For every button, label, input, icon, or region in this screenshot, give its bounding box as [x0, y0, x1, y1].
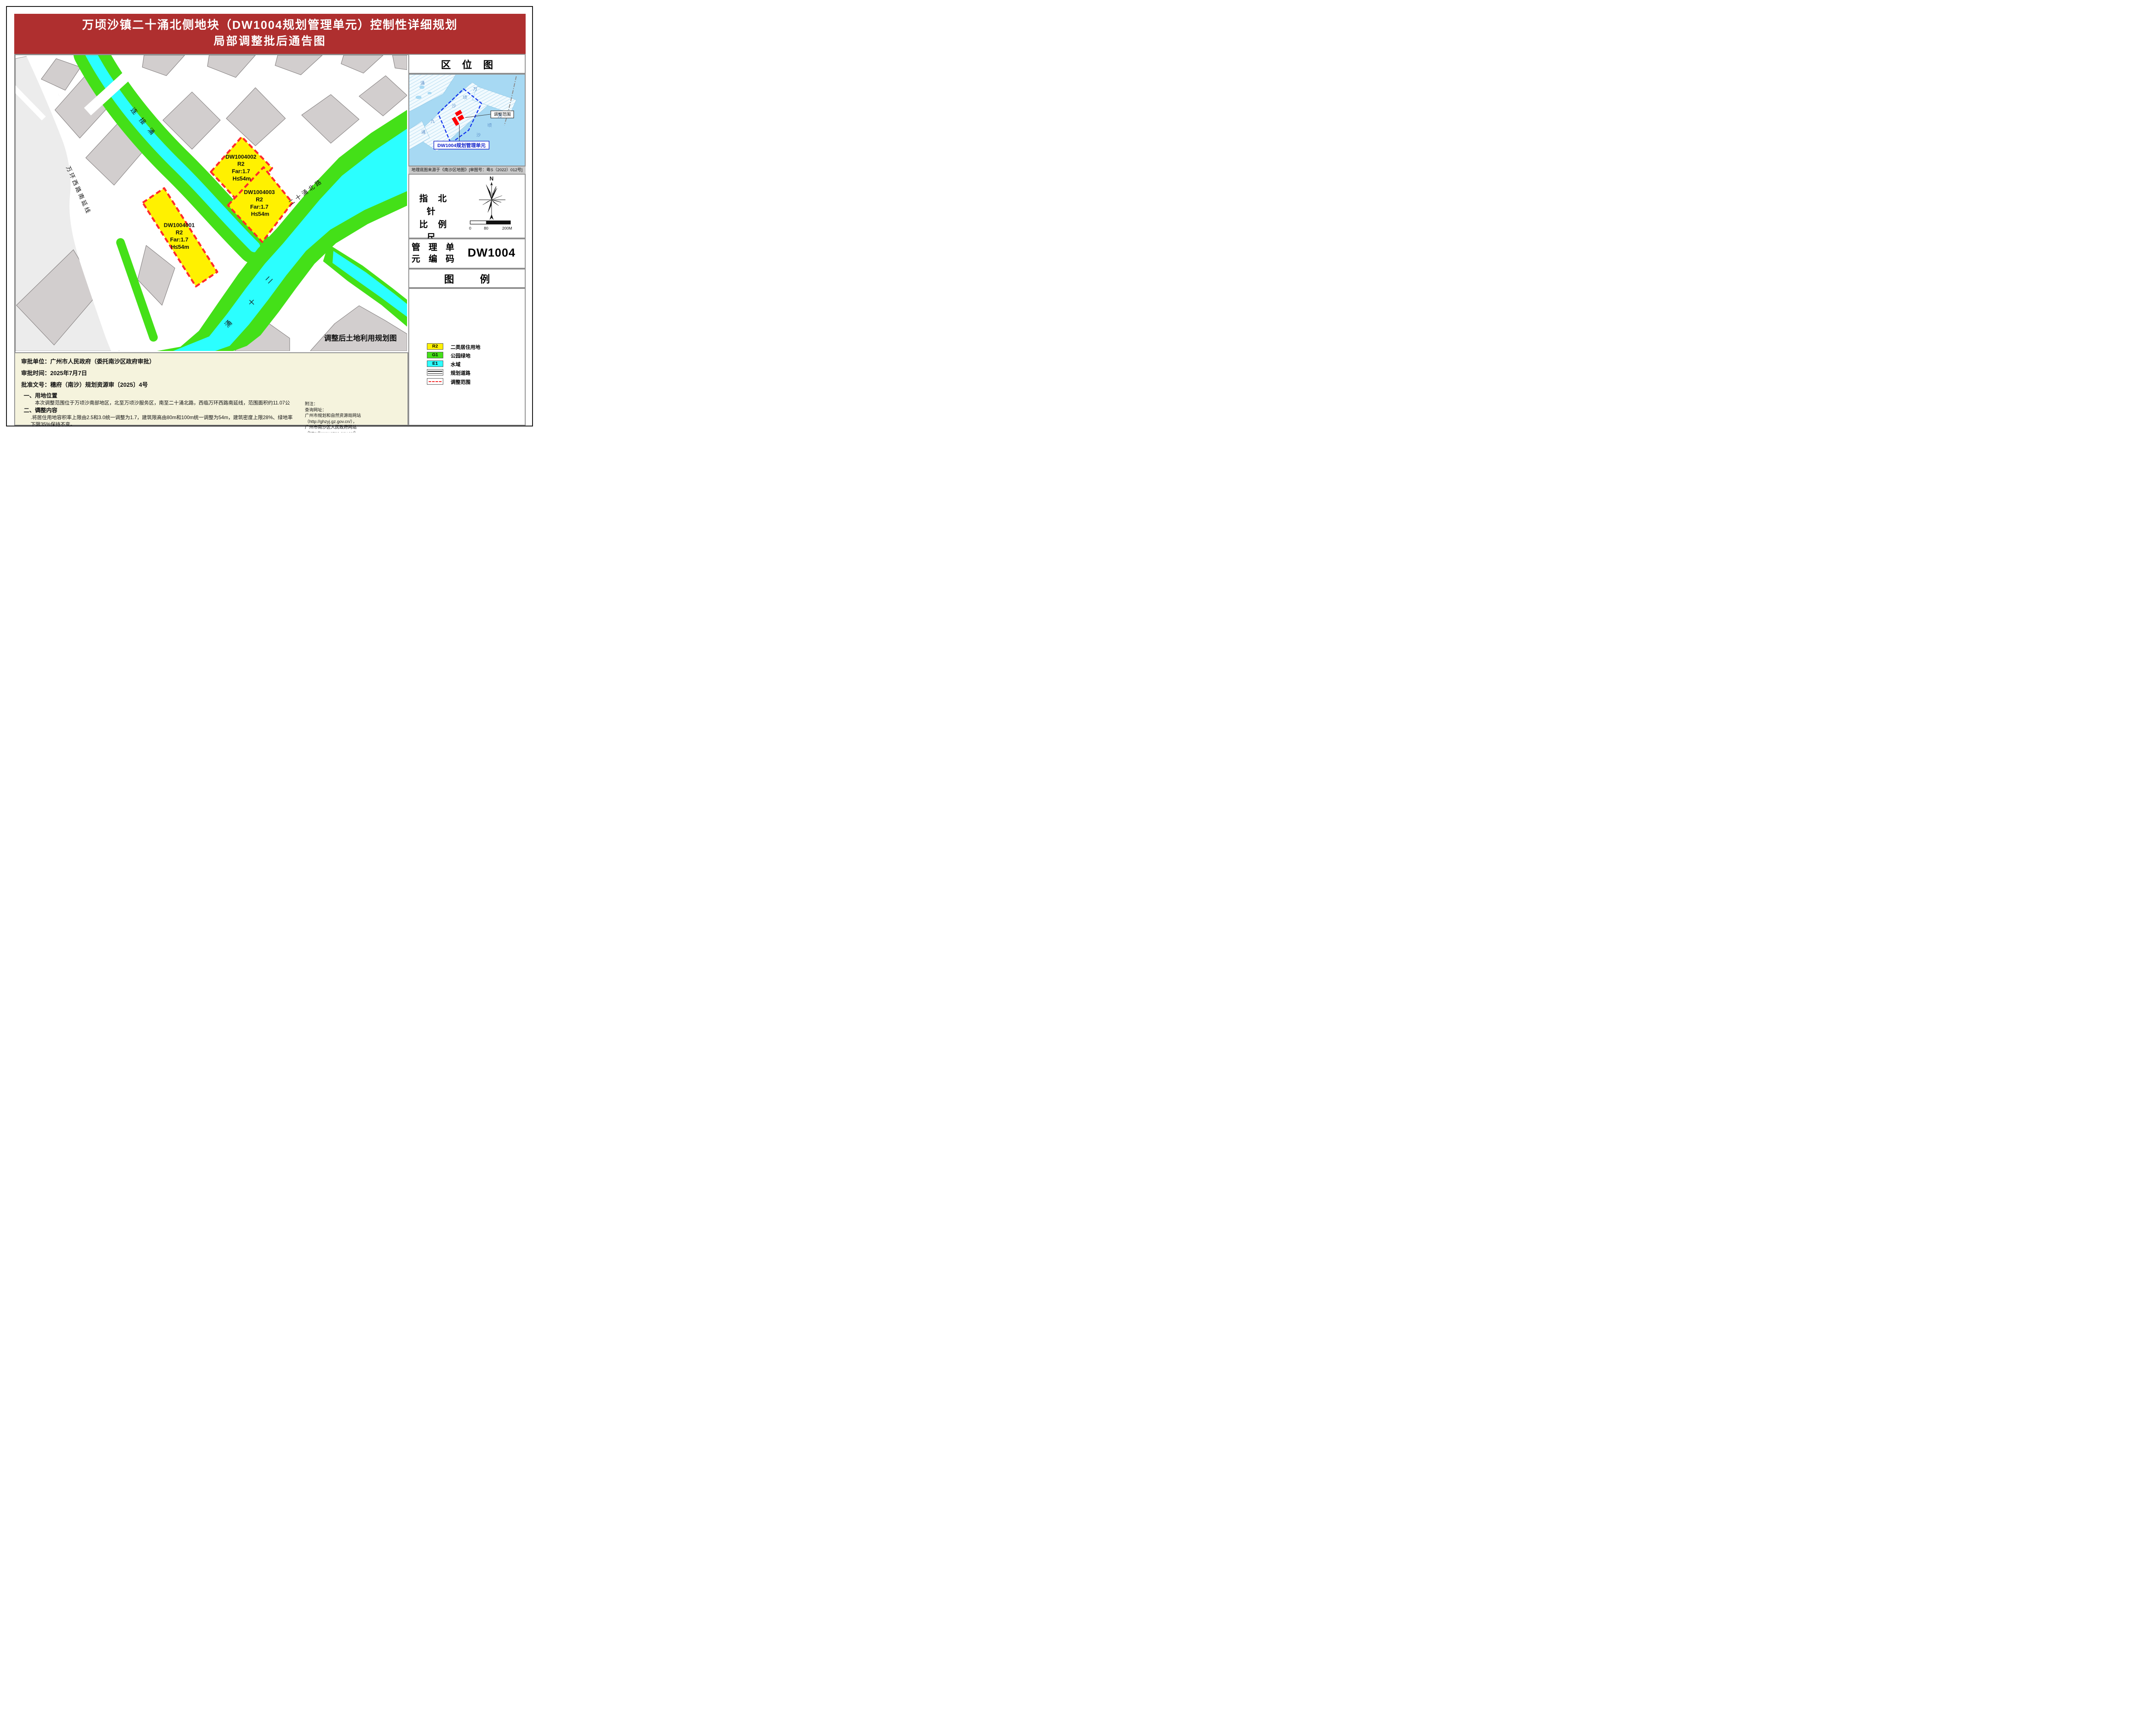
road-swatch: [427, 369, 443, 376]
compass-svg: N: [458, 174, 526, 237]
compass-panel-label: 指 北 针 比 例 尺: [408, 174, 458, 238]
location-map: 调整范围 DW1004规划管理单元 涌万顷沙九涌万顷沙: [408, 74, 526, 166]
minimap-geo-name: 顷: [487, 123, 492, 128]
g1-swatch: G1: [427, 352, 443, 358]
scale-tick-200: 200M: [502, 226, 512, 230]
lake: [420, 85, 425, 89]
legend-item-e1: E1 水域: [409, 360, 526, 367]
note-line2: 广州市规划和自然资源局网站（http://ghzyj.gz.gov.cn/），: [305, 413, 407, 425]
lake: [427, 92, 432, 94]
legend: R2 二类居住用地 G1 公园绿地 E1 水域 规划道路 调整范围: [408, 288, 526, 426]
approval-info: 审批单位：广州市人民政府（委托南沙区政府审批） 审批时间：2025年7月7日 批…: [14, 352, 408, 426]
legend-label: 公园绿地: [451, 352, 470, 359]
unit-code-label: 管 理 单 元 编 码: [408, 238, 458, 269]
minimap-geo-name: 涌: [420, 81, 425, 86]
legend-label: 规划道路: [451, 370, 470, 376]
approval-time: 审批时间：2025年7月7日: [21, 368, 87, 377]
range-label: 调整范围: [494, 112, 511, 117]
compass-and-scale: N: [458, 174, 526, 238]
north-arrow-icon: [479, 182, 505, 220]
legend-item-range: 调整范围: [409, 378, 526, 385]
notice-sheet: 万顷沙镇二十涌北侧地块（DW1004规划管理单元）控制性详细规划 局部调整批后通…: [0, 0, 539, 432]
location-map-svg: 调整范围 DW1004规划管理单元 涌万顷沙九涌万顷沙: [409, 75, 525, 166]
note-block: 附注： 查询网址： 广州市规划和自然资源局网站（http://ghzyj.gz.…: [305, 401, 407, 432]
section2-title: 二、调整内容: [24, 406, 57, 414]
compass-label-line1: 指 北 针: [408, 192, 458, 218]
e1-swatch: E1: [427, 360, 443, 367]
north-letter: N: [489, 176, 493, 182]
scale-bar: 0 80 200M: [469, 221, 512, 230]
minimap-geo-name: 顷: [463, 95, 467, 100]
minimap-geo-name: 万: [473, 87, 477, 92]
title-line2: 局部调整批后通告图: [14, 32, 526, 50]
title-bar: 万顷沙镇二十涌北侧地块（DW1004规划管理单元）控制性详细规划 局部调整批后通…: [14, 14, 526, 54]
note-line3: 广州市南沙区人民政府网站 （http://www.gzns.gov.cn/）。: [305, 425, 407, 432]
map-caption: 调整后土地利用规划图: [324, 334, 397, 342]
legend-item-r2: R2 二类居住用地: [409, 343, 526, 350]
legend-label: 调整范围: [451, 379, 470, 385]
minimap-geo-name: 九: [430, 119, 435, 124]
legend-item-road: 规划道路: [409, 369, 526, 376]
scale-tick-0: 0: [469, 226, 471, 230]
unit-label-line2: 元 编 码: [408, 254, 458, 265]
range-swatch: [427, 378, 443, 385]
approval-no: 批准文号：穗府（南沙）规划资源审〔2025〕4号: [21, 380, 148, 389]
landuse-map-svg: DW1004001 R2 Far:1.7 H≤54m DW1004002 R2 …: [16, 55, 407, 351]
unit-code-value: DW1004: [458, 238, 526, 269]
legend-label: 二类居住用地: [451, 344, 480, 351]
approval-unit: 审批单位：广州市人民政府（委托南沙区政府审批）: [21, 357, 155, 365]
legend-title: 图例: [408, 269, 526, 288]
legend-item-g1: G1 公园绿地: [409, 352, 526, 358]
minimap-geo-name: 沙: [476, 133, 481, 138]
minimap-geo-name: 沙: [452, 103, 456, 109]
minimap-geo-name: 万: [498, 114, 502, 119]
section1-title: 一、用地位置: [24, 391, 57, 399]
r2-swatch: R2: [427, 343, 443, 350]
section2-body: .将居住用地容积率上限由2.5和3.0统一调整为1.7，建筑限高由80m和100…: [31, 414, 294, 428]
unit-label: DW1004规划管理单元: [437, 142, 486, 148]
unit-label-line1: 管 理 单: [408, 242, 458, 254]
lake: [416, 96, 422, 99]
title-line1: 万顷沙镇二十涌北侧地块（DW1004规划管理单元）控制性详细规划: [14, 18, 526, 32]
location-map-title: 区位图: [408, 54, 526, 74]
minimap-geo-name: 涌: [421, 130, 426, 135]
scale-tick-80: 80: [484, 226, 488, 230]
note-line1: 查询网址：: [305, 407, 407, 414]
note-title: 附注：: [305, 401, 407, 407]
legend-label: 水域: [451, 361, 461, 368]
location-map-caption: 地理底图来源于《南沙区地图》[审图号：粤S（2022）012号]: [408, 166, 526, 174]
section1-body: 本次调整范围位于万顷沙南部地区，北至万顷沙服务区，南至二十涌北路，西临万环西路南…: [35, 399, 294, 413]
landuse-map: DW1004001 R2 Far:1.7 H≤54m DW1004002 R2 …: [14, 54, 411, 355]
arrow-tail: [489, 214, 494, 220]
